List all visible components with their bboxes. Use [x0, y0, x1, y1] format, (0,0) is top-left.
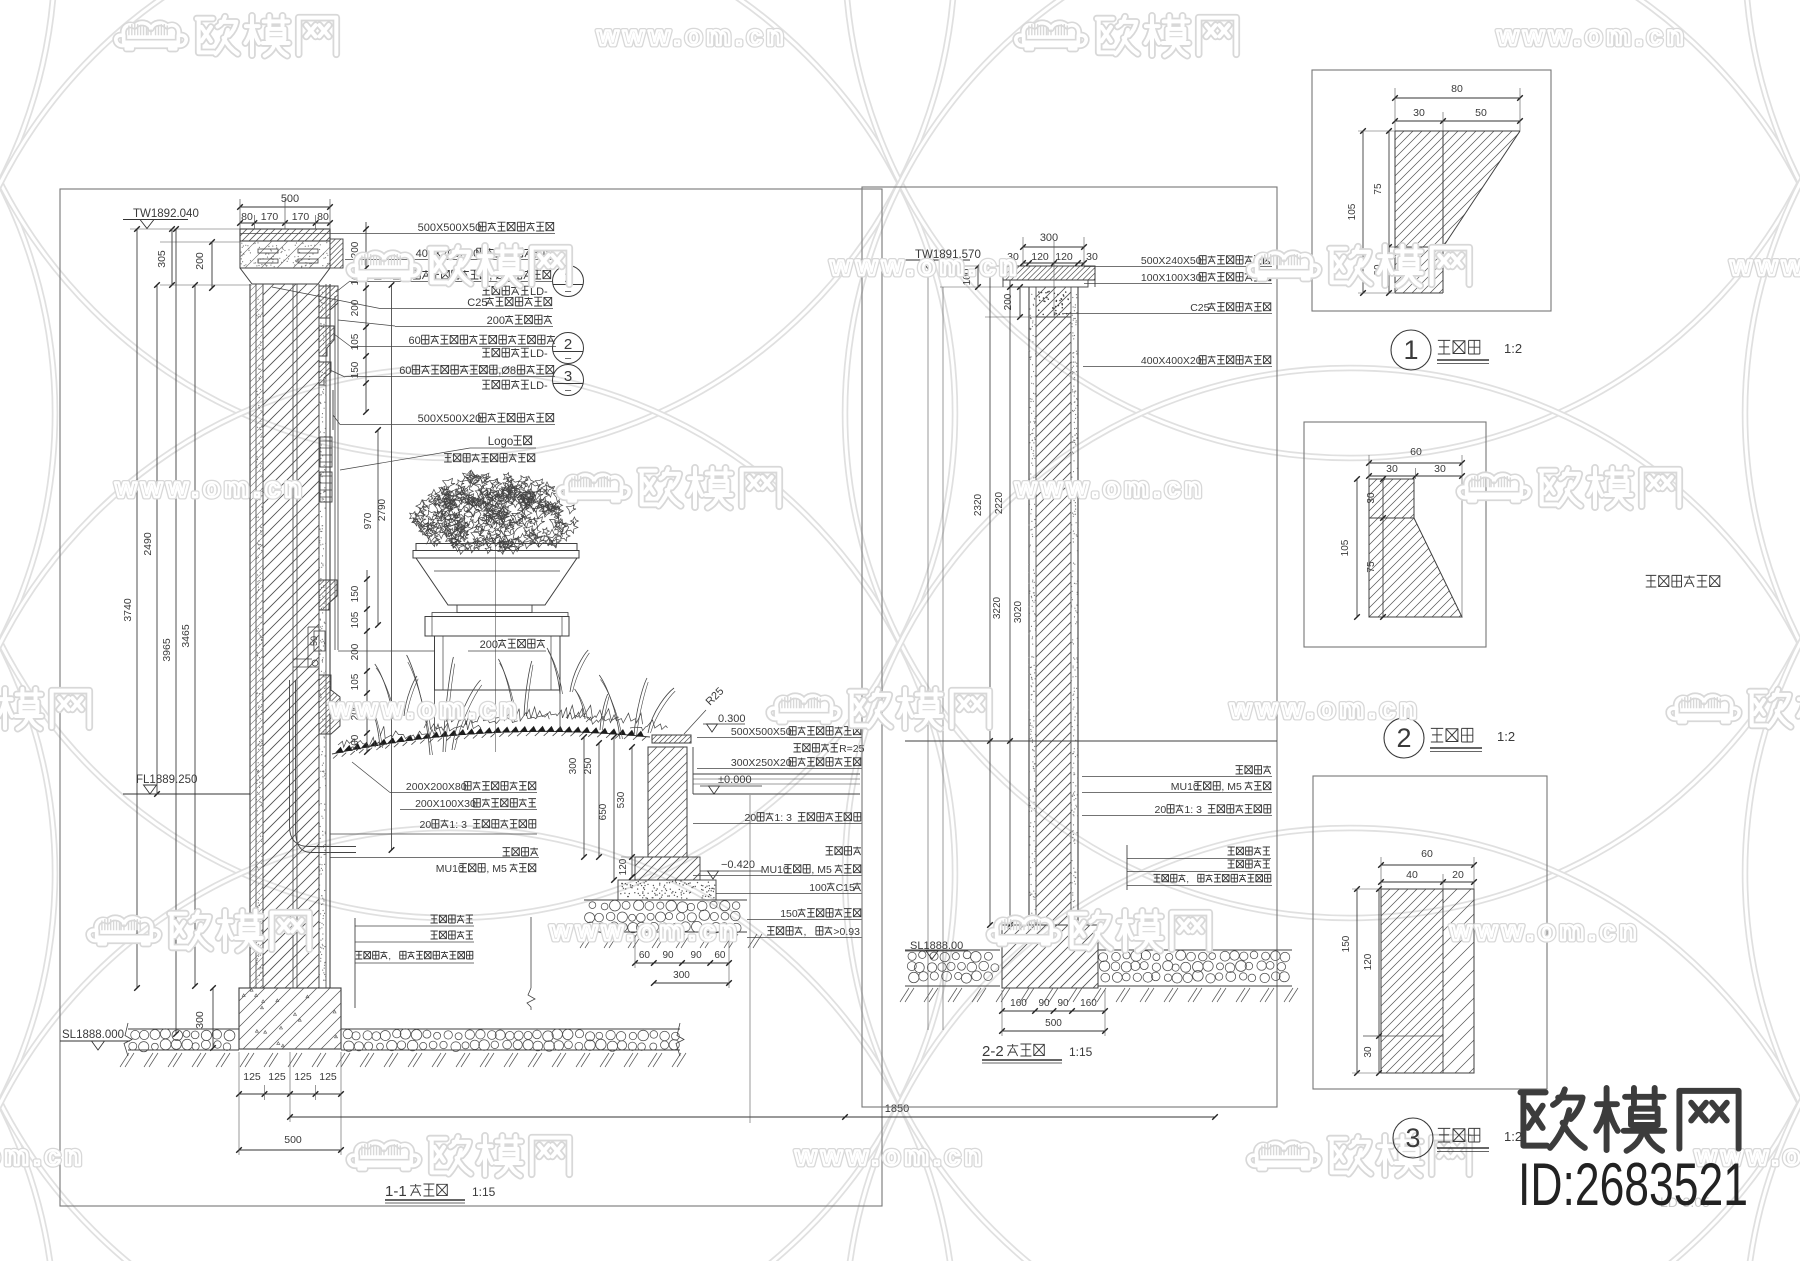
svg-text:160: 160 [1010, 998, 1027, 1009]
svg-text:www.om.cn: www.om.cn [1229, 693, 1421, 724]
svg-text:60: 60 [714, 950, 726, 961]
svg-text:1850: 1850 [885, 1103, 909, 1115]
svg-text:200X100X30: 200X100X30 [415, 798, 476, 810]
svg-text:www.om.cn: www.om.cn [0, 1140, 86, 1171]
svg-text:SL1888.00: SL1888.00 [910, 940, 963, 952]
svg-text:50: 50 [1475, 107, 1487, 119]
svg-text:www.om.cn: www.om.cn [829, 250, 1021, 281]
svg-text:www.om.cn: www.om.cn [549, 915, 741, 946]
svg-text:160: 160 [1080, 998, 1097, 1009]
svg-text:75: 75 [1366, 561, 1377, 573]
svg-text:125: 125 [319, 1071, 337, 1083]
svg-text:125: 125 [243, 1071, 261, 1083]
svg-text:1:2: 1:2 [1504, 341, 1522, 356]
svg-text:www.om.cn: www.om.cn [596, 20, 788, 51]
svg-text:1: 3: 1: 3 [1184, 804, 1202, 816]
svg-text:20: 20 [745, 812, 757, 824]
svg-text:,: , [1186, 874, 1189, 885]
svg-text:80: 80 [317, 211, 329, 223]
svg-text:,Ø8: ,Ø8 [498, 365, 516, 377]
svg-text:200: 200 [1003, 293, 1014, 310]
svg-text:500: 500 [1045, 1018, 1062, 1029]
svg-text:300: 300 [1040, 232, 1058, 244]
svg-text:2-2: 2-2 [982, 1043, 1004, 1060]
svg-text:40: 40 [1406, 869, 1418, 881]
svg-text:90: 90 [691, 950, 703, 961]
svg-text:2790: 2790 [377, 498, 388, 521]
svg-text:105: 105 [350, 673, 361, 690]
svg-text:105: 105 [1347, 203, 1358, 220]
svg-text:2320: 2320 [973, 493, 984, 516]
svg-text:2: 2 [1396, 723, 1411, 753]
svg-text:1:2: 1:2 [1497, 729, 1515, 744]
svg-text:90: 90 [662, 950, 674, 961]
svg-text:3: 3 [1405, 1123, 1420, 1153]
svg-text:80: 80 [241, 211, 253, 223]
svg-text:500X500X50: 500X500X50 [418, 222, 482, 234]
svg-text:125: 125 [294, 1071, 312, 1083]
svg-text:30: 30 [1386, 463, 1398, 475]
svg-text:60: 60 [409, 335, 421, 347]
svg-text:300: 300 [568, 757, 579, 774]
svg-text:500X500X20: 500X500X20 [418, 413, 482, 425]
svg-text:100X100X30: 100X100X30 [1141, 272, 1202, 284]
svg-text:60: 60 [399, 365, 411, 377]
svg-text:150: 150 [780, 908, 798, 920]
svg-text:500: 500 [284, 1134, 302, 1146]
svg-text:TW1892.040: TW1892.040 [133, 208, 199, 220]
svg-text:200X200X80: 200X200X80 [406, 781, 467, 793]
svg-text:Logo: Logo [488, 436, 514, 448]
svg-text:www.om.cn: www.om.cn [114, 472, 306, 503]
svg-text:300: 300 [194, 1011, 206, 1029]
svg-text:1-1: 1-1 [385, 1183, 407, 1200]
svg-text:FL1889.250: FL1889.250 [136, 774, 197, 786]
svg-text:80: 80 [1451, 83, 1463, 95]
svg-text:300X250X20: 300X250X20 [731, 757, 792, 769]
svg-text:1: 3: 1: 3 [774, 812, 792, 824]
svg-text:150: 150 [350, 585, 361, 602]
svg-text:www.om.cn: www.om.cn [794, 1140, 986, 1171]
svg-text:120: 120 [1055, 251, 1073, 263]
svg-text:75: 75 [1373, 183, 1384, 195]
svg-text:970: 970 [363, 512, 374, 529]
svg-text:105: 105 [1340, 539, 1351, 556]
svg-text:400X400X20: 400X400X20 [1141, 355, 1202, 367]
svg-text:, M5: , M5 [486, 863, 507, 875]
svg-text:60: 60 [639, 950, 651, 961]
svg-text:R=25: R=25 [839, 743, 865, 755]
svg-text:–: – [565, 353, 572, 365]
svg-text:3020: 3020 [1013, 600, 1024, 623]
svg-text:±0.000: ±0.000 [718, 774, 752, 786]
svg-text:1:15: 1:15 [1069, 1045, 1093, 1059]
svg-text:2490: 2490 [142, 532, 154, 556]
svg-text:ID:2683521: ID:2683521 [1518, 1151, 1748, 1218]
svg-text:500X500X50: 500X500X50 [731, 726, 792, 738]
svg-text:C15: C15 [836, 882, 855, 894]
svg-text:www.om.cn: www.om.cn [1496, 20, 1688, 51]
svg-text:30: 30 [1366, 492, 1377, 504]
svg-text:MU10: MU10 [1171, 781, 1199, 793]
svg-text:www.om.cn: www.om.cn [1014, 472, 1206, 503]
svg-text:300: 300 [350, 734, 361, 751]
svg-text:20: 20 [1155, 804, 1167, 816]
svg-text:2220: 2220 [994, 491, 1005, 514]
svg-text:500: 500 [281, 193, 299, 205]
svg-text:105: 105 [350, 333, 361, 350]
svg-text:www.om.cn: www.om.cn [1729, 250, 1800, 281]
svg-text:200: 200 [350, 299, 361, 316]
svg-text:C25: C25 [1190, 302, 1209, 314]
svg-text:60: 60 [1410, 446, 1422, 458]
svg-text:1:15: 1:15 [472, 1185, 496, 1199]
svg-text:305: 305 [156, 250, 168, 268]
svg-text:3: 3 [564, 368, 572, 385]
svg-text:, M5: , M5 [1221, 781, 1242, 793]
svg-text:MU10: MU10 [436, 863, 464, 875]
svg-text:170: 170 [261, 211, 279, 223]
svg-text:60: 60 [1421, 848, 1433, 860]
svg-text:200: 200 [487, 315, 505, 327]
svg-text:LD-: LD- [530, 348, 548, 360]
svg-text:120: 120 [1031, 251, 1049, 263]
svg-text:SL1888.000: SL1888.000 [62, 1029, 124, 1041]
svg-text:150: 150 [1341, 935, 1352, 952]
svg-text:3465: 3465 [180, 624, 192, 648]
svg-text:30: 30 [1434, 463, 1446, 475]
svg-text:90: 90 [1057, 998, 1069, 1009]
svg-text:2: 2 [564, 336, 572, 353]
svg-text:650: 650 [598, 803, 609, 820]
svg-text:www.om.cn: www.om.cn [329, 693, 521, 724]
svg-text:LD-: LD- [530, 380, 548, 392]
svg-text:>0.93: >0.93 [833, 926, 860, 938]
svg-text:30: 30 [1413, 107, 1425, 119]
svg-text:150: 150 [350, 361, 361, 378]
svg-text:MU10: MU10 [761, 864, 789, 876]
svg-text:50: 50 [309, 636, 319, 646]
svg-text:1: 1 [1403, 335, 1418, 365]
svg-text:30: 30 [1086, 251, 1098, 263]
svg-text:3965: 3965 [161, 638, 173, 662]
svg-text:90: 90 [1038, 998, 1050, 1009]
svg-text:C25: C25 [467, 297, 487, 309]
svg-text:−0.420: −0.420 [721, 859, 755, 871]
svg-text:500X240X50: 500X240X50 [1141, 255, 1202, 267]
svg-text:125: 125 [268, 1071, 286, 1083]
svg-text:, M5: , M5 [811, 864, 832, 876]
svg-text:20: 20 [1452, 869, 1464, 881]
svg-text:200: 200 [194, 252, 206, 270]
svg-text:,: , [388, 951, 391, 962]
svg-text:1: 3: 1: 3 [449, 819, 467, 831]
svg-text:20: 20 [420, 819, 432, 831]
svg-text:200: 200 [480, 639, 498, 651]
svg-text:1:2: 1:2 [1504, 1129, 1522, 1144]
svg-text:100: 100 [809, 882, 827, 894]
svg-text:200: 200 [350, 643, 361, 660]
svg-text:0.300: 0.300 [718, 713, 746, 725]
svg-text:,: , [804, 926, 807, 938]
svg-text:www.om.cn: www.om.cn [1449, 915, 1641, 946]
svg-text:250: 250 [583, 757, 594, 774]
svg-text:300: 300 [673, 970, 690, 981]
svg-text:–: – [565, 385, 572, 397]
svg-text:120: 120 [618, 858, 629, 875]
svg-text:120: 120 [1363, 953, 1374, 970]
svg-text:30: 30 [1363, 1046, 1374, 1058]
svg-text:530: 530 [616, 791, 627, 808]
svg-text:170: 170 [292, 211, 310, 223]
svg-text:3740: 3740 [122, 598, 134, 622]
svg-text:105: 105 [350, 611, 361, 628]
svg-text:3220: 3220 [992, 596, 1003, 619]
